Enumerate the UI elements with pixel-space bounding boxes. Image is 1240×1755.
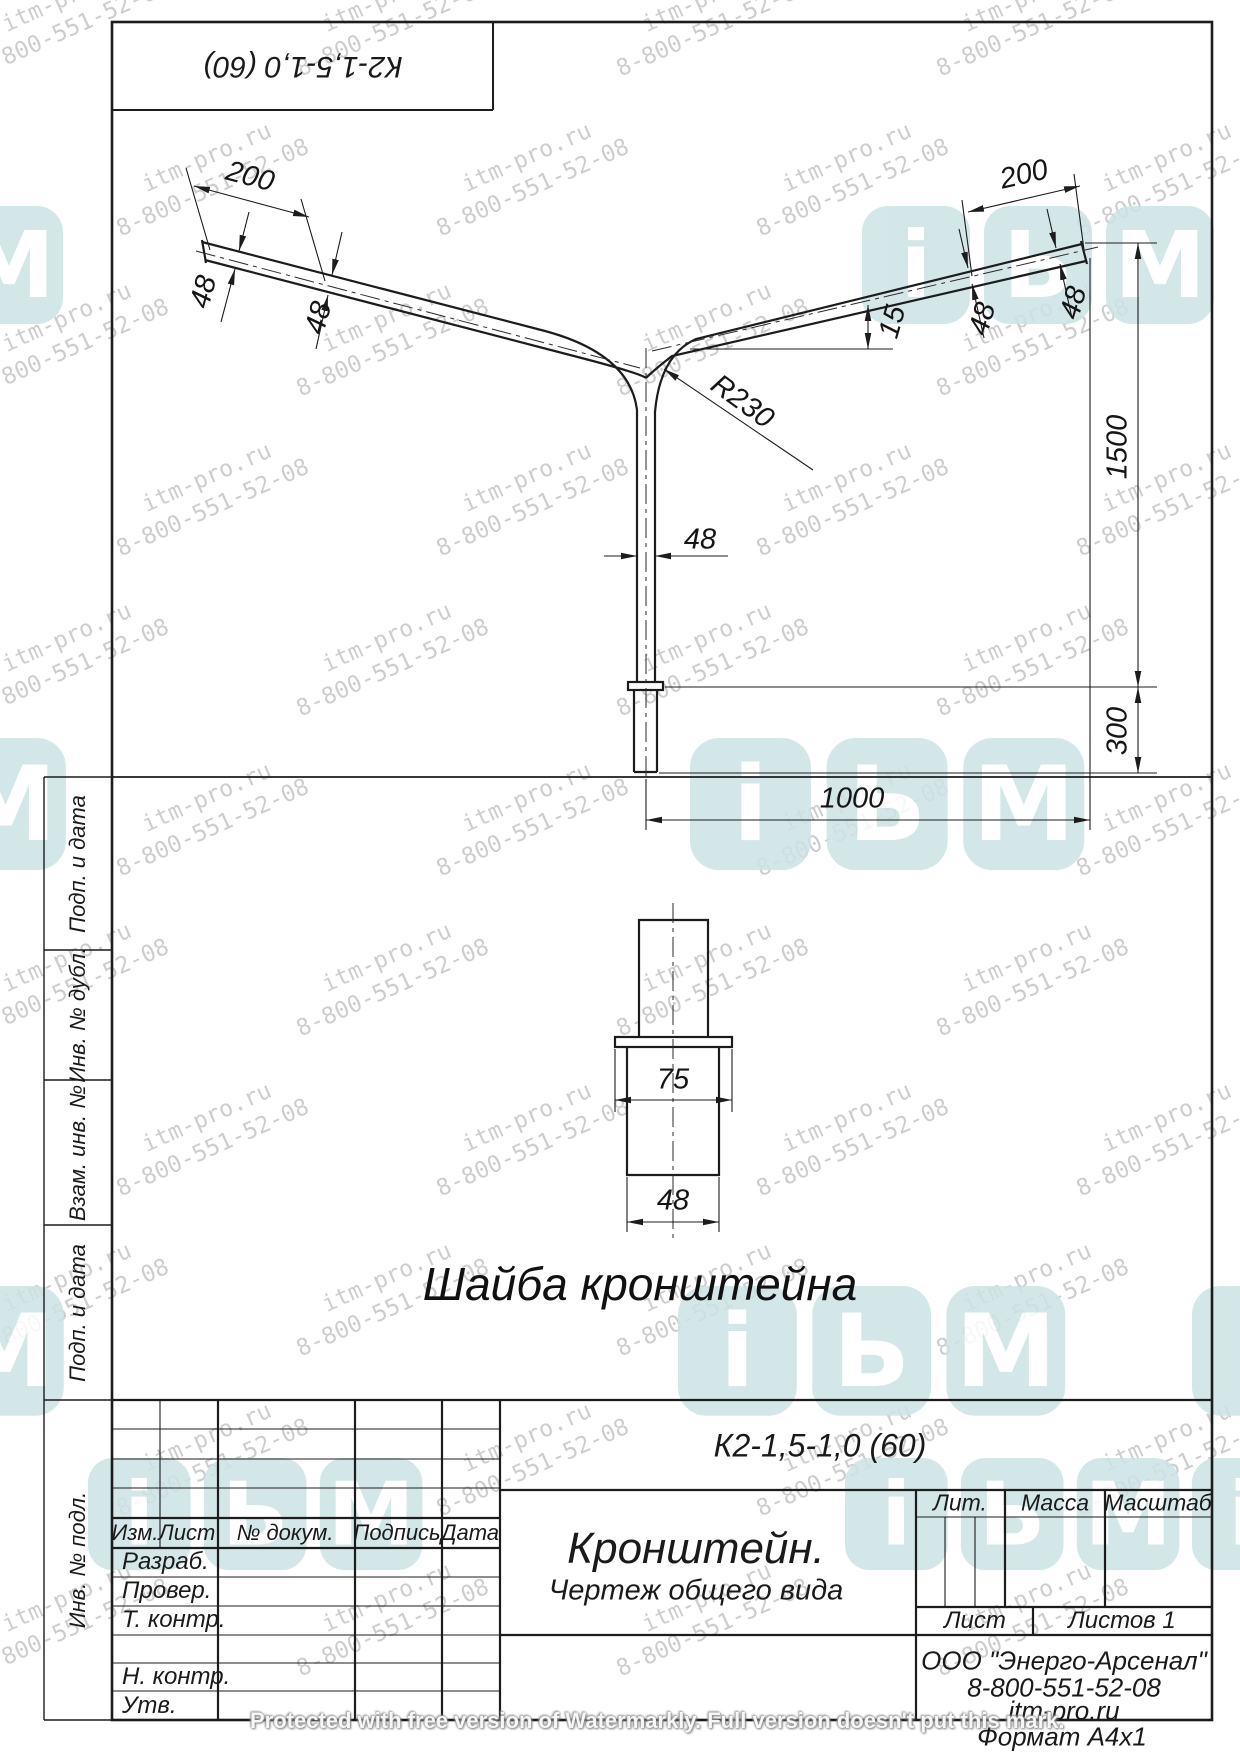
tb-header-podpis: Подпись	[353, 1520, 440, 1546]
tb-header-data: Дата	[441, 1520, 499, 1546]
drawing-sheet: itm-pro.ru 8-800-551-52-08 itm-pro.ru 8-…	[0, 0, 1240, 1755]
dim-label-radius-r230: R230	[704, 368, 779, 435]
tb-scale-label: Масштаб	[1104, 1490, 1211, 1517]
watermarkly-protect-text: Protected with free version of Watermark…	[250, 1708, 1065, 1734]
label-layer: К2-1,5-1,0 (60) Шайба кронштейна К2-1,5-…	[0, 0, 1240, 1755]
tb-row-razrab: Разраб.	[122, 1548, 209, 1576]
margin-cell-2: Взам. инв. №	[65, 1084, 91, 1220]
washer-caption: Шайба кронштейна	[423, 1257, 858, 1311]
dim-label-height-1500: 1500	[1102, 415, 1135, 480]
tb-row-tkontr: Т. контр.	[122, 1606, 226, 1634]
dim-label-washer-75: 75	[657, 1064, 689, 1097]
margin-cell-3: Подп. и дата	[65, 1244, 91, 1382]
dim-label-right-48-tip: 48	[1054, 283, 1095, 323]
tb-header-list: Лист	[159, 1520, 216, 1546]
margin-cell-0: Подп. и дата	[65, 795, 91, 933]
tb-row-prover: Провер.	[122, 1577, 211, 1605]
tb-row-utv: Утв.	[122, 1692, 177, 1720]
dim-label-right-arm-200: 200	[997, 153, 1052, 196]
titleblock-doc-title: Кронштейн.	[567, 1524, 825, 1574]
margin-cell-1: Инв. № дубл.	[65, 947, 91, 1082]
margin-cell-4: Инв. № подл.	[65, 1492, 91, 1629]
dim-label-washer-48: 48	[657, 1185, 689, 1218]
tb-sheet-label: Лист	[944, 1607, 1006, 1635]
titleblock-designation: К2-1,5-1,0 (60)	[714, 1428, 927, 1465]
tb-header-ndokum: № докум.	[237, 1520, 334, 1546]
dim-label-right-48-mid: 48	[963, 299, 1004, 339]
titleblock-doc-subtitle: Чертеж общего вида	[549, 1575, 844, 1608]
tb-lit-label: Лит.	[933, 1490, 987, 1517]
tb-sheets-label: Листов 1	[1068, 1607, 1175, 1635]
dim-label-left-arm-200: 200	[222, 155, 277, 199]
dim-label-base-300: 300	[1102, 707, 1135, 755]
dim-label-left-48-mid: 48	[299, 298, 339, 338]
corner-designation: К2-1,5-1,0 (60)	[203, 49, 402, 83]
dim-label-left-48-tip: 48	[184, 272, 224, 312]
dim-label-pole-48: 48	[684, 524, 716, 557]
tb-mass-label: Масса	[1021, 1490, 1089, 1517]
dim-label-reach-1000: 1000	[820, 783, 885, 816]
tb-header-izm: Изм.	[112, 1520, 159, 1546]
dim-label-slope-15: 15	[873, 302, 914, 342]
tb-row-nkontr: Н. контр.	[122, 1663, 230, 1691]
